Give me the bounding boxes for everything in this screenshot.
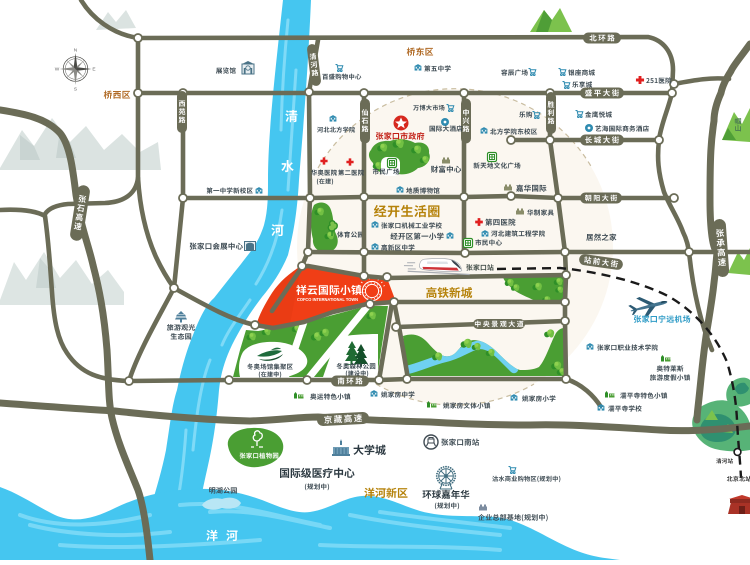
svg-text:E: E xyxy=(92,67,95,73)
svg-text:COFCO INTERNATIONAL TOWN: COFCO INTERNATIONAL TOWN xyxy=(297,297,358,302)
svg-text:N: N xyxy=(74,48,78,54)
svg-text:W: W xyxy=(55,67,60,73)
svg-text:S: S xyxy=(74,87,77,93)
